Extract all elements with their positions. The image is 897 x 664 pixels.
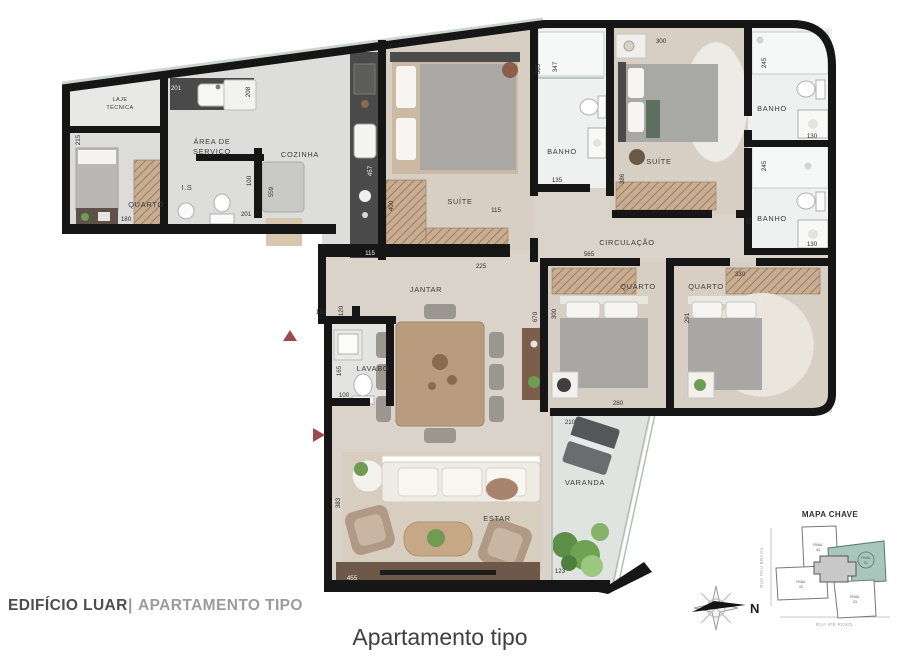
suite1-label: SUÍTE [447,197,472,206]
plant-icon [354,462,368,476]
plant-icon [591,523,609,541]
dim: 245 [761,57,768,68]
dim: 201 [171,85,182,92]
bed-quarto1 [76,148,118,226]
page-caption: Apartamento tipo [352,624,527,650]
floor-plan-page: LAJE TÉCNICA QUARTO ÁREA DE SERVIÇO I.S … [0,0,897,664]
lavabo-label: LAVABO [357,364,390,373]
dim: 201 [241,211,252,218]
dim: 180 [121,216,132,223]
bed-suite1 [390,52,520,174]
dim: 225 [476,263,487,270]
jantar-label: JANTAR [410,285,442,294]
key-map-block [834,580,876,618]
banho3-label: BANHO [757,214,787,223]
svg-text:04: 04 [816,548,820,552]
plant-icon [427,529,445,547]
block-label: FINAL [861,556,871,560]
living-set [336,452,542,584]
wardrobe-quarto1 [134,160,162,226]
footer-separator: | [128,597,133,614]
block-label: FINAL [850,595,860,599]
cozinha-label: COZINHA [281,150,319,159]
compass-rose-icon: N [692,586,759,630]
dim: 300 [656,38,667,45]
footer-subtitle: APARTAMENTO TIPO [138,597,303,614]
dim: 385 [535,63,542,74]
tv [380,570,496,575]
dim: 130 [807,133,818,140]
svg-text:03: 03 [853,600,857,604]
street-left-label: RUA PAU BRASIL [759,546,764,588]
entry-arrow-up-icon [283,330,297,341]
stove [354,124,376,158]
estar-label: ESTAR [483,514,511,523]
dim: 400 [388,200,395,211]
street-bottom-label: RUA IPÊ ROXO [816,620,853,627]
footer-project-name: EDIFÍCIO LUAR [8,597,128,614]
banho1-label: BANHO [547,147,577,156]
floor-plan-svg: LAJE TÉCNICA QUARTO ÁREA DE SERVIÇO I.S … [0,0,897,664]
key-map-title: MAPA CHAVE [802,510,859,519]
circulacao-label: CIRCULAÇÃO [599,238,654,247]
dim: 123 [555,568,566,575]
dim: 383 [335,497,342,508]
dim: 291 [684,312,691,323]
quarto3-label: QUARTO [688,282,724,291]
is-label: I.S [181,183,192,192]
plant-icon [581,555,603,577]
dim: 165 [336,365,343,376]
svg-text:02: 02 [799,585,803,589]
dim: 670 [532,311,539,322]
dim: 135 [552,177,563,184]
dim: 300 [551,308,558,319]
dim: 455 [347,575,358,582]
dim: 95 [746,217,753,224]
quarto2-label: QUARTO [620,282,656,291]
svg-text:SERVIÇO: SERVIÇO [193,147,231,156]
kitchen-counter [350,52,378,258]
closet-suite2 [616,182,716,210]
dim: 130 [807,241,818,248]
key-map: MAPA CHAVE RUA PAU BRASIL RUA IPÊ ROXO F… [759,510,890,627]
dim: 347 [552,61,559,72]
dim: 132 [316,309,327,316]
dim: 100 [339,392,350,399]
dim: 565 [584,251,595,258]
area-servico-label: ÁREA DE [194,137,231,146]
suite2-label: SUÍTE [646,157,671,166]
dim: 100 [246,175,253,186]
dim: 215 [75,134,82,145]
laundry-counter [170,78,256,110]
entry-arrow-right-icon [313,428,325,442]
plant-icon [528,376,540,388]
dim: 559 [268,186,275,197]
dim: 120 [338,305,345,316]
block-label: FINAL [796,580,806,584]
quarto1-label: QUARTO [128,200,164,209]
laje-tecnica-label: LAJE [113,97,128,103]
svg-text:TÉCNICA: TÉCNICA [106,104,133,111]
footer: EDIFÍCIO LUAR | APARTAMENTO TIPO [8,597,303,614]
dim: 330 [735,271,746,278]
dim: 208 [245,86,252,97]
varanda-label: VARANDA [565,478,605,487]
dim: 115 [365,250,375,257]
compass-north-label: N [750,601,759,616]
plant-icon [694,379,706,391]
dim: 245 [761,160,768,171]
dim: 210 [565,419,576,426]
pouf [486,478,518,500]
dim: 386 [619,173,626,184]
plant-icon [81,213,89,221]
svg-text:01: 01 [864,561,868,565]
banho2-label: BANHO [757,104,787,113]
dim: 457 [367,165,374,176]
dim: 115 [491,207,501,214]
bed-quarto2 [552,296,648,398]
dim: 280 [613,400,624,407]
block-label: FINAL [813,543,823,547]
bed-quarto3 [688,293,814,398]
